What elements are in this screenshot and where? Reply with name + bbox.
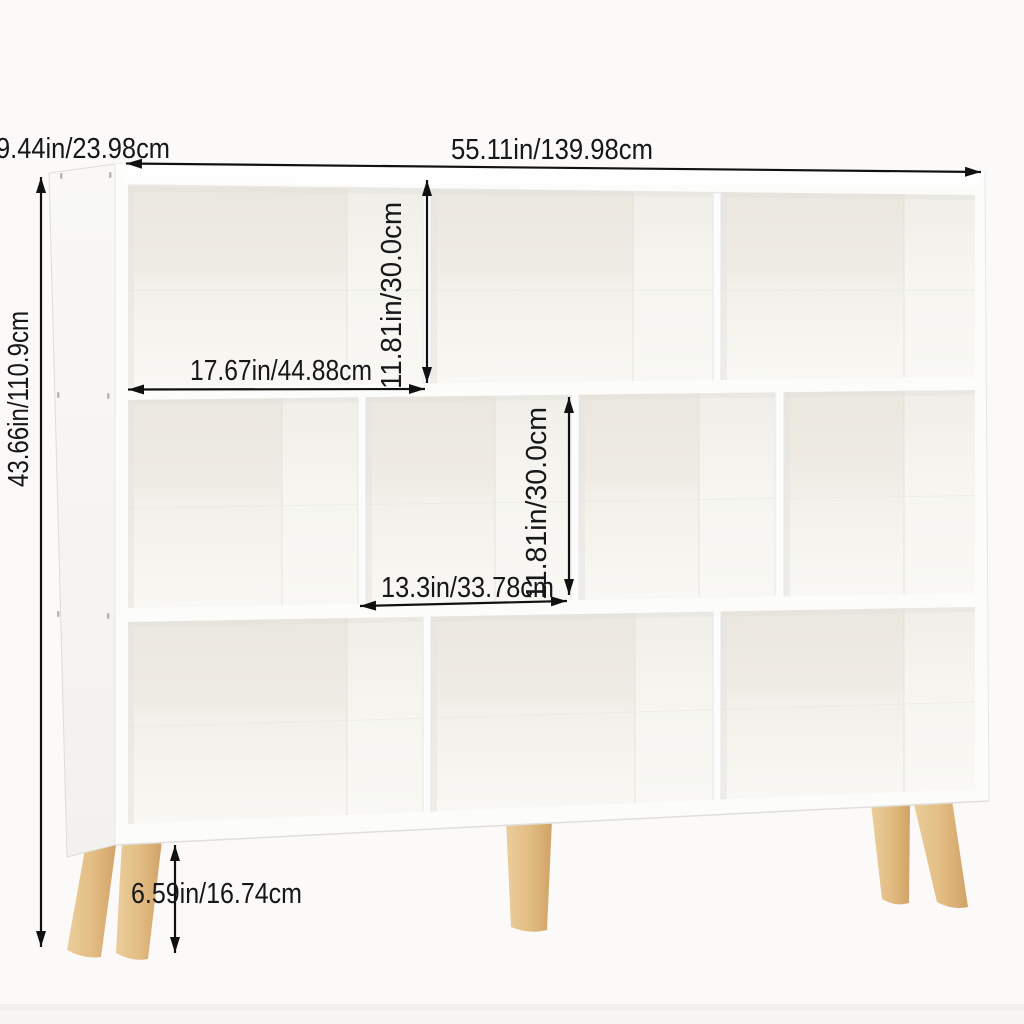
- svg-text:11.81in/30.0cm: 11.81in/30.0cm: [376, 202, 408, 389]
- svg-text:55.11in/139.98cm: 55.11in/139.98cm: [451, 134, 653, 166]
- svg-text:9.44in/23.98cm: 9.44in/23.98cm: [0, 133, 170, 165]
- svg-text:6.59in/16.74cm: 6.59in/16.74cm: [131, 878, 302, 910]
- svg-text:17.67in/44.88cm: 17.67in/44.88cm: [190, 355, 372, 387]
- svg-text:11.81in/30.0cm: 11.81in/30.0cm: [521, 407, 553, 600]
- svg-text:43.66in/110.9cm: 43.66in/110.9cm: [3, 311, 35, 487]
